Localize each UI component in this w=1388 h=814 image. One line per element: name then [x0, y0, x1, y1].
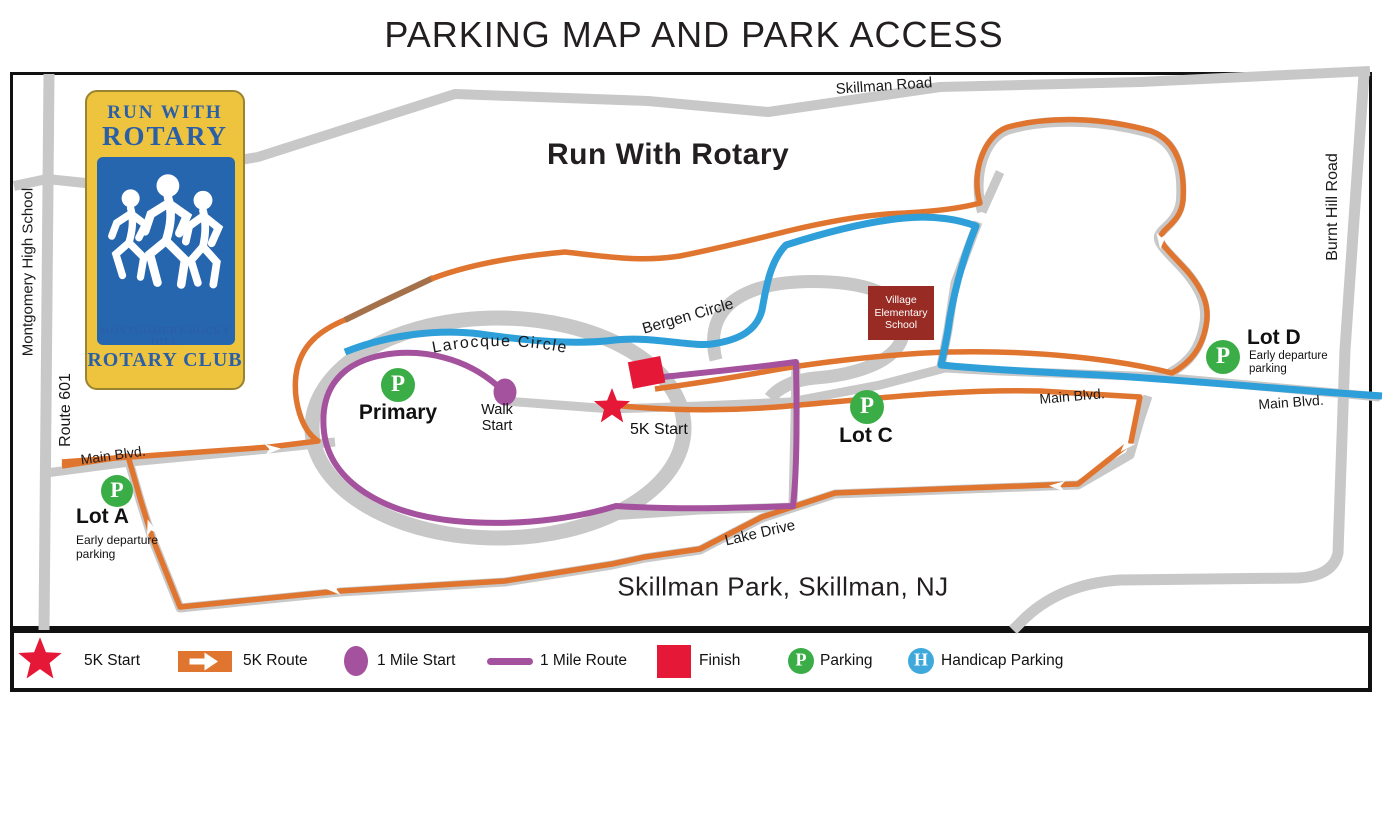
legend-handicap-letter: H — [914, 650, 928, 671]
route-601-label: Route 601 — [57, 373, 75, 447]
burnt-hill-road-label: Burnt Hill Road — [1324, 153, 1342, 261]
legend-label-handicap-parking: Handicap Parking — [941, 652, 1063, 670]
lot-c-label: Lot C — [839, 424, 893, 448]
road-ne-loop — [979, 122, 1206, 373]
legend-label-parking: Parking — [820, 652, 873, 670]
legend-parking-letter: P — [796, 650, 807, 671]
legend-label-1mile-start: 1 Mile Start — [377, 652, 455, 670]
legend-label-5k-route: 5K Route — [243, 652, 308, 670]
runners-silhouette-icon — [97, 157, 235, 345]
walk-start-line-2: Start — [481, 418, 513, 434]
map-heading: Run With Rotary — [547, 138, 789, 172]
larocque-circle-label: Larocque Circle — [431, 333, 570, 357]
lot-a-note-2: parking — [76, 547, 115, 561]
school-line-2: Elementary — [868, 307, 934, 320]
lot-d-label: Lot D — [1247, 326, 1301, 350]
road-route-601 — [44, 74, 49, 630]
lot-d-note-1: Early departure — [1249, 349, 1328, 363]
parking-letter-lot-a: P — [110, 477, 123, 503]
logo-title-line-2: ROTARY — [87, 121, 243, 152]
lot-d-note-2: parking — [1249, 362, 1287, 376]
parking-letter-lot-d: P — [1216, 343, 1230, 369]
school-line-1: Village — [868, 294, 934, 307]
school-line-3: School — [868, 319, 934, 332]
legend-label-5k-start: 5K Start — [84, 652, 140, 670]
road-ne-diagonal — [982, 172, 1000, 212]
village-elementary-school: Village Elementary School — [868, 286, 934, 340]
route-5k-brown-segment — [345, 278, 433, 320]
walk-start-label: Walk Start — [481, 402, 513, 434]
legend-label-1mile-route: 1 Mile Route — [540, 652, 627, 670]
lot-a-label: Lot A — [76, 505, 129, 529]
parking-letter-lot-c: P — [860, 393, 874, 419]
route-arrows-group — [142, 232, 1167, 595]
park-name-label: Skillman Park, Skillman, NJ — [617, 572, 948, 603]
primary-lot-label: Primary — [359, 401, 437, 425]
montgomery-high-school-label: Montgomery High School — [20, 188, 37, 356]
run-with-rotary-logo: RUN WITH ROTARY — [85, 90, 245, 390]
logo-subtitle-line-1: MONTGOMERY-ROCKY HILL — [87, 326, 243, 348]
five-k-start-star — [594, 388, 630, 422]
route-5k-outbound — [62, 391, 1140, 607]
five-k-start-label: 5K Start — [630, 421, 688, 439]
parking-letter-primary: P — [391, 371, 405, 397]
lot-a-note-1: Early departure — [76, 533, 158, 547]
legend-label-finish: Finish — [699, 652, 740, 670]
walk-start-line-1: Walk — [481, 402, 513, 418]
logo-subtitle-line-2: ROTARY CLUB — [87, 349, 243, 372]
parking-map-page: PARKING MAP AND PARK ACCESS — [0, 0, 1388, 814]
